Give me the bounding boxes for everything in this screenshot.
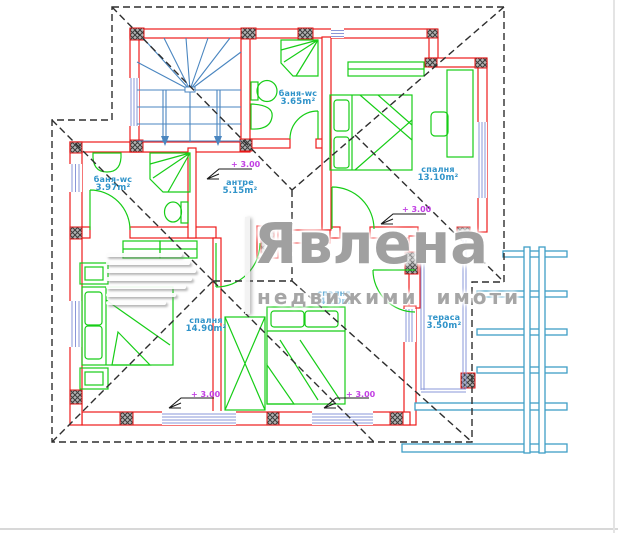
sink-icon bbox=[251, 104, 272, 129]
bed bbox=[330, 95, 412, 170]
page-border-right bbox=[613, 0, 615, 533]
nightstand bbox=[80, 263, 108, 284]
elevation-marker: + 3.00 bbox=[207, 160, 261, 179]
floor-plan-drawing: + 3.00 + 3.00 + 3.00 + 3.00 bbox=[0, 0, 618, 533]
bedroom-right-furniture bbox=[330, 62, 473, 170]
room-label-bath-left: баня-wc 3.97m² bbox=[81, 175, 145, 193]
desk bbox=[447, 70, 473, 157]
room-area: 3.65m² bbox=[266, 98, 330, 107]
elevation-value: + 3.00 bbox=[346, 390, 376, 399]
room-label-bedroom-middle: спалня 14.20m² bbox=[302, 289, 366, 307]
room-area: 14.20m² bbox=[302, 298, 366, 307]
nightstand bbox=[80, 368, 108, 389]
room-label-bedroom-right: спалня 13.10m² bbox=[406, 165, 470, 183]
elevation-value: + 3.00 bbox=[231, 160, 261, 169]
elevation-marker: + 3.00 bbox=[381, 205, 432, 224]
elevation-value: + 3.00 bbox=[402, 205, 432, 214]
page-border-bottom bbox=[0, 528, 618, 530]
room-area: 3.97m² bbox=[81, 184, 145, 193]
floor-plan-page: + 3.00 + 3.00 + 3.00 + 3.00 баня-wc 3.65… bbox=[0, 0, 618, 533]
sink-icon bbox=[93, 153, 121, 172]
room-area: 3.50m² bbox=[412, 322, 476, 331]
pergola bbox=[402, 247, 567, 453]
door-arc bbox=[290, 111, 318, 139]
room-label-hallway: антре 5.15m² bbox=[208, 178, 272, 196]
room-area: 5.15m² bbox=[208, 187, 272, 196]
staircase bbox=[137, 38, 241, 146]
room-label-terrace: тераса 3.50m² bbox=[412, 313, 476, 331]
roof-outline bbox=[52, 7, 504, 442]
room-area: 13.10m² bbox=[406, 174, 470, 183]
room-area: 14.90m² bbox=[174, 325, 238, 334]
chair bbox=[431, 112, 448, 136]
room-label-bath-top: баня-wc 3.65m² bbox=[266, 89, 330, 107]
room-label-bedroom-left: спалня 14.90m² bbox=[174, 316, 238, 334]
elevation-value: + 3.00 bbox=[191, 390, 221, 399]
door-arc bbox=[90, 190, 130, 230]
